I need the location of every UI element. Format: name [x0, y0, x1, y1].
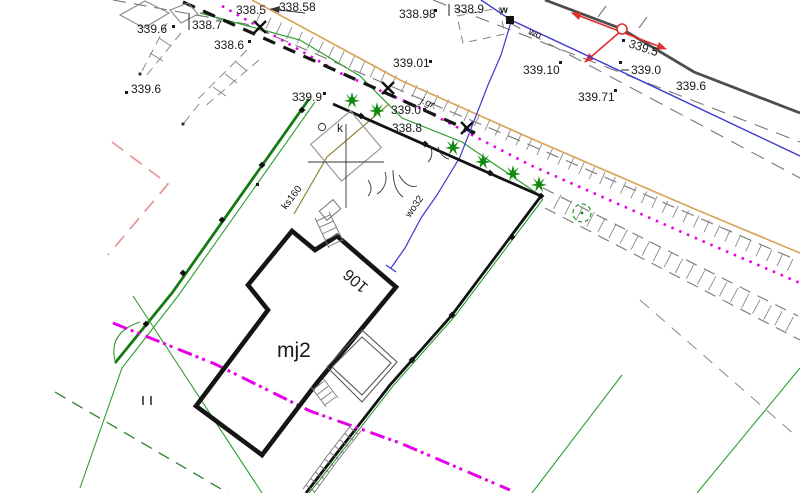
vegetation [344, 92, 591, 222]
parcel-boundaries [55, 99, 800, 493]
x-mark-icon [254, 21, 266, 33]
green-boundary-line-road [200, 13, 541, 196]
green-dashed-boundary [55, 392, 228, 493]
road-hatching [255, 13, 793, 332]
salmon-dashed-design [108, 142, 168, 255]
curb-tick-1 [598, 6, 606, 17]
inner-green-line [133, 296, 262, 493]
green-line-bottom-right-1 [532, 375, 622, 493]
elevation-label: 338.5 [236, 3, 266, 17]
map-canvas: 338.5 338.58 338.7 339.6 338.6 339.6 338… [0, 0, 800, 493]
elevation-label: 338.8 [392, 121, 422, 135]
driveway-2 [184, 50, 259, 123]
elevation-label: 338.9 [454, 2, 484, 16]
elevation-label: 339.01 [393, 56, 430, 70]
map-labels: 338.5 338.58 338.7 339.6 338.6 339.6 338… [131, 0, 706, 362]
water-service-end-tick [386, 265, 396, 272]
building-type-label: mj2 [277, 339, 311, 362]
elevation-label: 339.6 [137, 22, 167, 36]
cadastral-map-view: 338.5 338.58 338.7 339.6 338.6 339.6 338… [0, 0, 800, 493]
tree-center-dot [581, 212, 584, 215]
driveway-2-end-dot [181, 122, 184, 125]
entry-landing-rect [319, 200, 341, 221]
road-lane-dashed-1 [433, 0, 800, 142]
gate-ticks-icon [143, 396, 151, 405]
boundary-thick-top [333, 104, 541, 196]
elevation-label: 338.58 [279, 0, 316, 14]
boundary-posts [143, 107, 545, 364]
house-number-label: 106 [340, 265, 371, 295]
well-label: k [337, 121, 344, 135]
elevation-label: 338.6 [214, 38, 244, 52]
sewer-label: ks160 [280, 184, 305, 212]
utility-lines [183, 0, 800, 283]
elevation-label: 339.0 [631, 63, 661, 77]
elevation-label: 339.6 [676, 79, 706, 93]
driveway-2-rungs [213, 62, 247, 96]
magenta-dashdot-line [113, 323, 510, 490]
driveway-1-end-dot [138, 72, 141, 75]
curb-tick-2 [639, 17, 647, 28]
conifer-icon [445, 139, 461, 155]
elevation-label: 338.98 [399, 7, 436, 21]
survey-point-circle [617, 24, 627, 34]
hatch-rungs [255, 13, 793, 271]
x-mark-icon [382, 82, 394, 94]
bush-icon [368, 145, 449, 197]
elevation-label: 339.71 [578, 90, 615, 104]
water-service-label: wo32 [403, 193, 427, 220]
sidewalk-edge-dashed-1 [543, 188, 798, 316]
building-group [196, 111, 397, 493]
green-line-bottom-right-2 [697, 368, 800, 493]
elevation-label: 338.7 [192, 18, 222, 32]
bold-dashed-line [183, 2, 475, 133]
elevation-label: 339.9 [292, 90, 322, 104]
well-circle-icon [318, 123, 325, 130]
water-node-square [506, 16, 514, 24]
terrace-inner [332, 337, 391, 395]
water-main-line [481, 0, 800, 156]
steps-hatching [303, 212, 361, 493]
road-dashed-far-right [640, 300, 795, 435]
elevation-label: 339.10 [523, 63, 560, 77]
road-lines [113, 0, 800, 435]
water-node-label: w [499, 5, 508, 16]
conifer-icon [344, 92, 360, 108]
elevation-label: 339.5 [627, 37, 660, 60]
elevation-label: 339.6 [131, 82, 161, 96]
conifer-icon [531, 176, 547, 192]
elevation-label: 339.0 [391, 103, 421, 117]
